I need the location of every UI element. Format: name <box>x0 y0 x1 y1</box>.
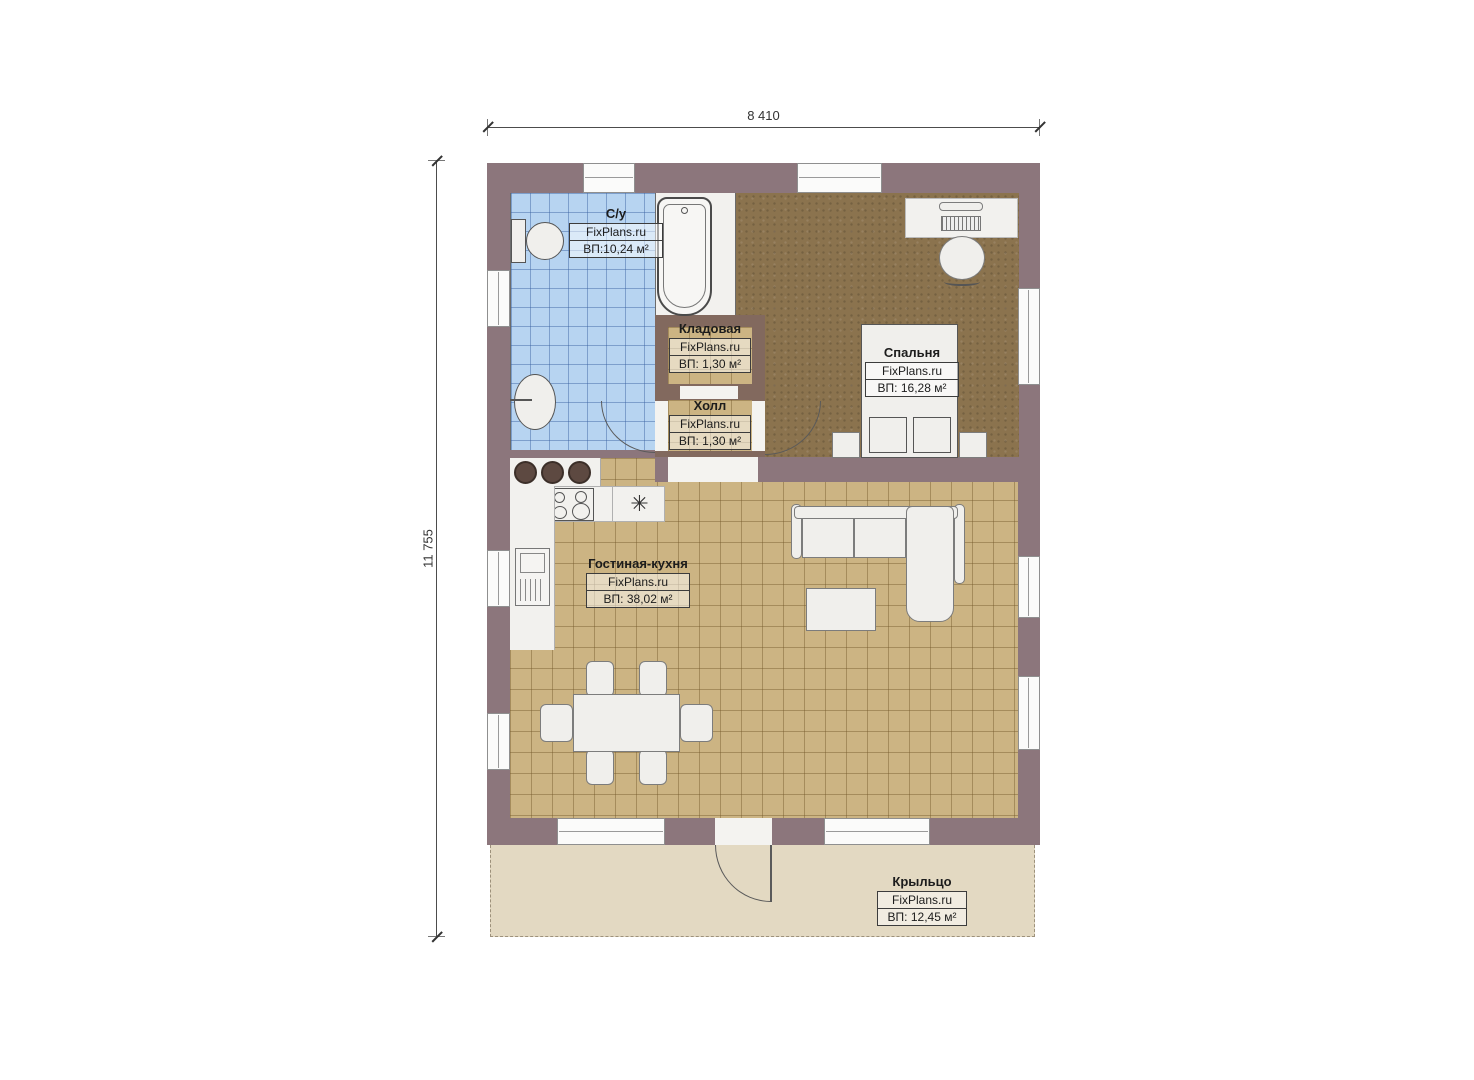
window <box>487 270 510 327</box>
window <box>583 163 635 193</box>
room-info-box: FixPlans.ru ВП: 1,30 м² <box>669 415 751 450</box>
watermark-text: FixPlans.ru <box>587 574 689 590</box>
room-name: Кладовая <box>664 321 756 336</box>
dimension-line-width <box>487 127 1040 128</box>
room-info-box: FixPlans.ru ВП:10,24 м² <box>569 223 663 258</box>
window <box>1018 676 1040 750</box>
dining-chair <box>639 661 667 697</box>
sofa-cushion <box>802 518 854 558</box>
watermark-text: FixPlans.ru <box>670 416 750 432</box>
dining-chair <box>639 749 667 785</box>
washbasin-tap <box>510 399 532 401</box>
dimension-line-height <box>436 160 437 937</box>
porch-label: Крыльцо FixPlans.ru ВП: 12,45 м² <box>872 874 972 926</box>
watermark-text: FixPlans.ru <box>670 339 750 355</box>
sofa-cushion <box>854 518 906 558</box>
nightstand <box>959 432 987 458</box>
room-area: ВП: 38,02 м² <box>587 590 689 607</box>
fridge-freezer-box <box>520 553 545 573</box>
toilet-tank <box>511 219 526 263</box>
window <box>487 713 510 770</box>
toilet-bowl <box>526 222 564 260</box>
stove-burner-icon <box>575 491 587 503</box>
bathroom-label: С/у FixPlans.ru ВП:10,24 м² <box>560 206 672 258</box>
room-name: С/у <box>560 206 672 221</box>
room-area: ВП: 16,28 м² <box>866 379 958 396</box>
watermark-text: FixPlans.ru <box>878 892 966 908</box>
dining-table <box>573 694 680 752</box>
room-info-box: FixPlans.ru ВП: 16,28 м² <box>865 362 959 397</box>
window <box>824 818 930 845</box>
stove-burner-icon <box>553 506 567 519</box>
room-area: ВП: 1,30 м² <box>670 355 750 372</box>
wall-below-bathroom <box>510 450 655 458</box>
room-area: ВП: 12,45 м² <box>878 908 966 925</box>
window <box>1018 556 1040 618</box>
bathtub-faucet-icon <box>681 207 688 214</box>
storage-label: Кладовая FixPlans.ru ВП: 1,30 м² <box>664 321 756 373</box>
washbasin <box>514 374 556 430</box>
room-name: Спальня <box>864 345 960 360</box>
dining-chair <box>540 704 573 742</box>
monitor <box>939 202 983 211</box>
kitchen-sink-icon: ✳ <box>612 486 666 522</box>
living-room-label: Гостиная-кухня FixPlans.ru ВП: 38,02 м² <box>572 556 704 608</box>
window <box>557 818 665 845</box>
desk-chair <box>939 236 985 280</box>
watermark-text: FixPlans.ru <box>570 224 662 240</box>
room-info-box: FixPlans.ru ВП: 1,30 м² <box>669 338 751 373</box>
room-name: Гостиная-кухня <box>572 556 704 571</box>
fridge <box>515 548 550 606</box>
room-info-box: FixPlans.ru ВП: 38,02 м² <box>586 573 690 608</box>
floor-plan-canvas: 8 410 11 755 ✳ <box>0 0 1474 1080</box>
stove <box>549 488 594 521</box>
hob-burner-icon <box>541 461 564 484</box>
desk-chair-base <box>944 278 980 286</box>
dining-chair <box>586 749 614 785</box>
fridge-grill <box>520 579 545 601</box>
width-dimension-label: 8 410 <box>487 108 1040 123</box>
hob-burner-icon <box>514 461 537 484</box>
window <box>1018 288 1040 385</box>
dining-chair <box>586 661 614 697</box>
bedroom-label: Спальня FixPlans.ru ВП: 16,28 м² <box>864 345 960 397</box>
stove-burner-icon <box>554 492 565 503</box>
window <box>487 550 510 607</box>
height-dimension-label: 11 755 <box>421 519 436 579</box>
bed-pillow <box>869 417 907 453</box>
watermark-text: FixPlans.ru <box>866 363 958 379</box>
room-info-box: FixPlans.ru ВП: 12,45 м² <box>877 891 967 926</box>
room-name: Холл <box>664 398 756 413</box>
bed-pillow <box>913 417 951 453</box>
stove-burner-icon <box>572 503 590 520</box>
room-name: Крыльцо <box>872 874 972 889</box>
room-area: ВП:10,24 м² <box>570 240 662 257</box>
hall-living-opening <box>668 457 758 482</box>
hob-burner-icon <box>568 461 591 484</box>
window <box>797 163 882 193</box>
keyboard <box>941 216 981 231</box>
dining-chair <box>680 704 713 742</box>
entrance-door-opening <box>715 818 772 845</box>
sofa-chaise <box>906 506 954 622</box>
room-area: ВП: 1,30 м² <box>670 432 750 449</box>
nightstand <box>832 432 860 458</box>
hall-label: Холл FixPlans.ru ВП: 1,30 м² <box>664 398 756 450</box>
coffee-table <box>806 588 876 631</box>
